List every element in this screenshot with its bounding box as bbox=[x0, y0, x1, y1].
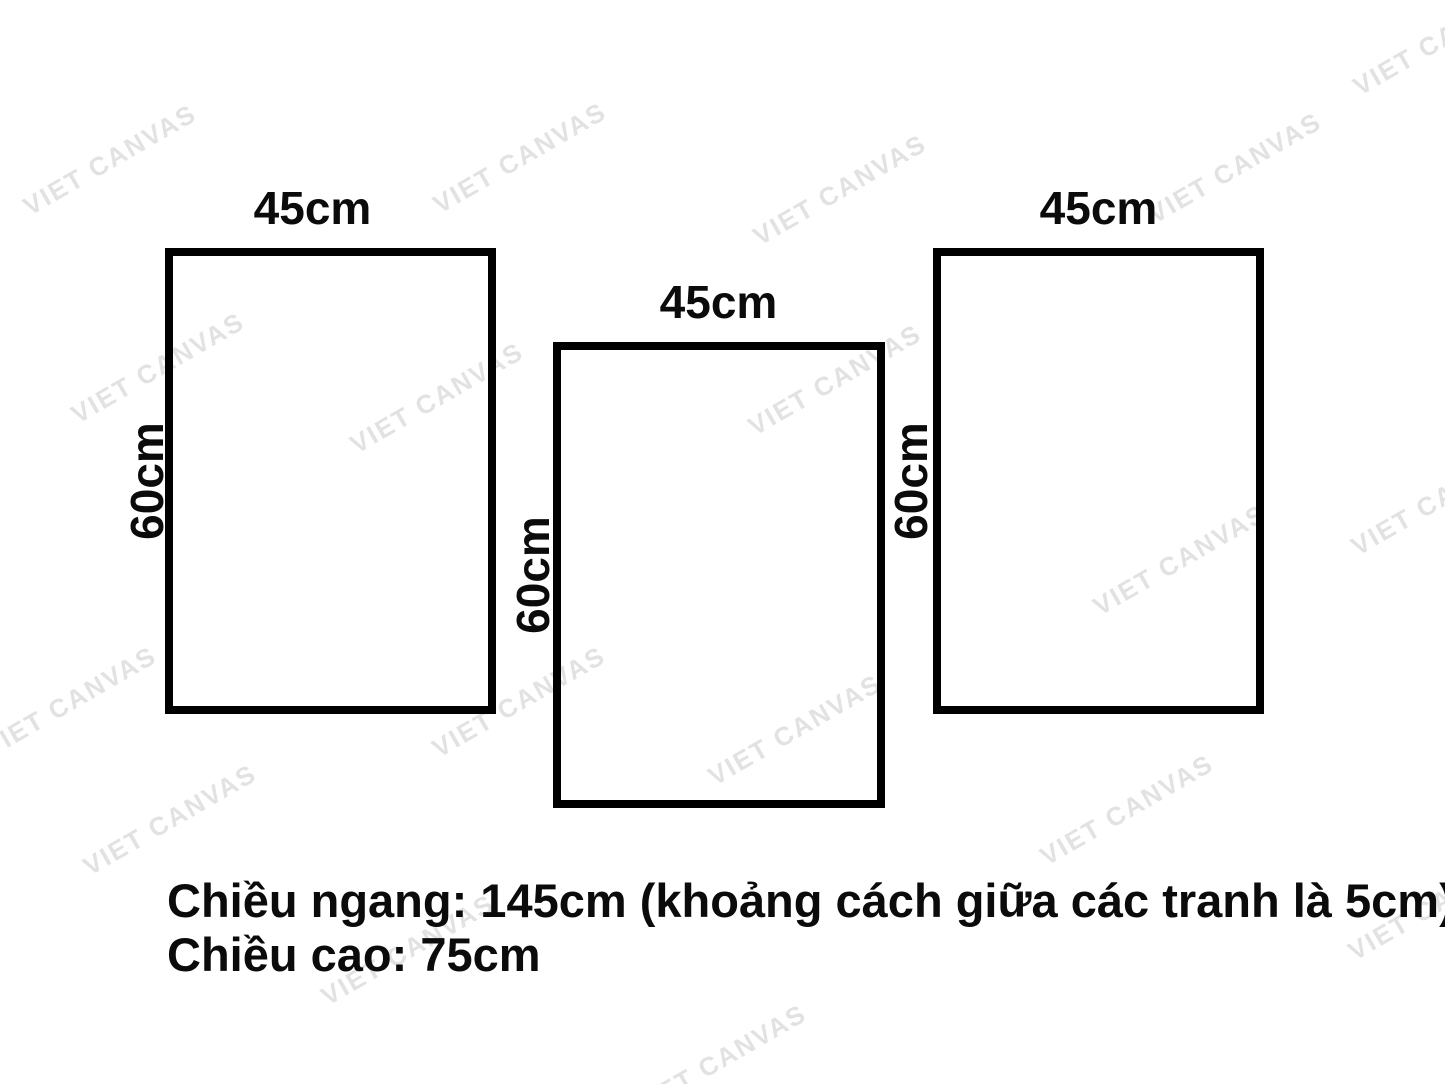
width-label-right: 45cm bbox=[933, 184, 1264, 232]
watermark-text: VIET CANVAS bbox=[78, 758, 262, 882]
height-label-left: 60cm bbox=[124, 422, 170, 540]
width-label-middle: 45cm bbox=[553, 278, 884, 326]
caption-line-vertical: Chiều cao: 75cm bbox=[167, 928, 1445, 982]
watermark-text: VIET CANVAS bbox=[1035, 748, 1219, 872]
caption: Chiều ngang: 145cm (khoảng cách giữa các… bbox=[167, 874, 1445, 982]
watermark-text: VIET CANVAS bbox=[1348, 0, 1445, 102]
canvas-panel-middle bbox=[553, 342, 885, 808]
height-label-right: 60cm bbox=[888, 422, 934, 540]
canvas-panel-left bbox=[165, 248, 496, 714]
watermark-text: VIET CANVAS bbox=[628, 998, 812, 1084]
diagram-canvas: VIET CANVASVIET CANVASVIET CANVASVIET CA… bbox=[0, 0, 1445, 1084]
watermark-text: VIET CANVAS bbox=[0, 640, 162, 764]
width-label-left: 45cm bbox=[147, 184, 478, 232]
height-label-middle: 60cm bbox=[510, 516, 556, 634]
watermark-text: VIET CANVAS bbox=[748, 128, 932, 252]
watermark-text: VIET CANVAS bbox=[1346, 438, 1445, 562]
canvas-panel-right bbox=[933, 248, 1264, 714]
caption-line-horizontal: Chiều ngang: 145cm (khoảng cách giữa các… bbox=[167, 874, 1445, 928]
